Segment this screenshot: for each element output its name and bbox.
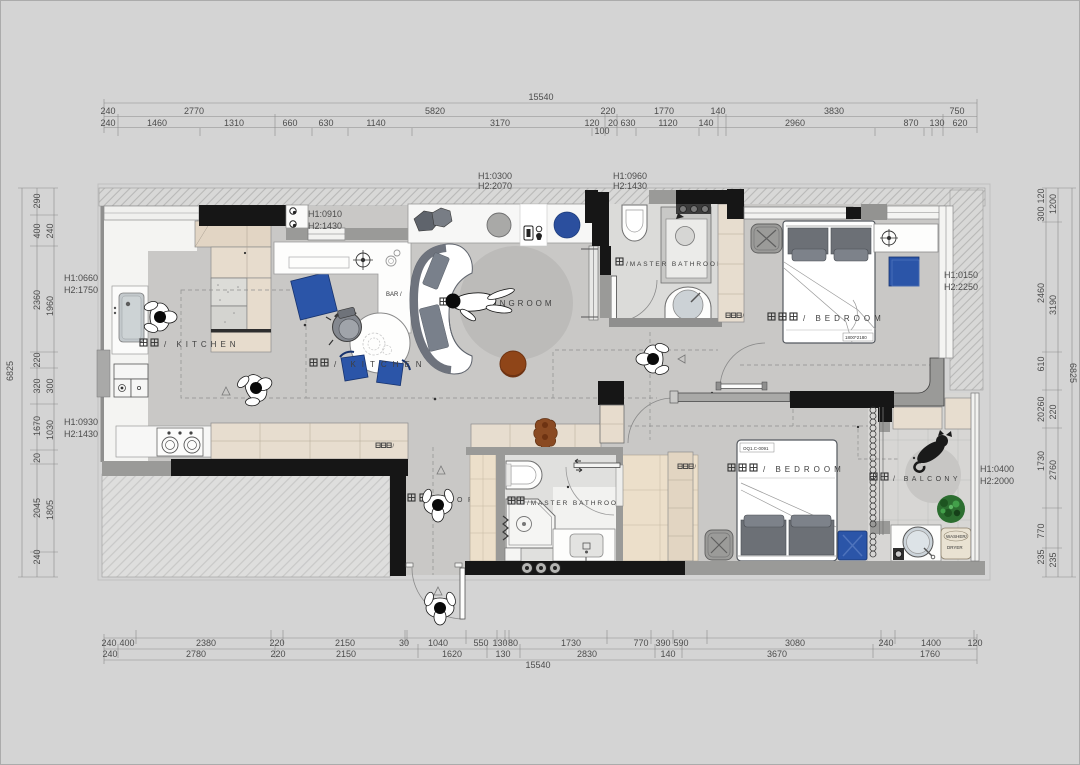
svg-text:3830: 3830 [824,106,844,116]
svg-text:770: 770 [1036,523,1046,538]
svg-text:610: 610 [1036,356,1046,371]
svg-text:3190: 3190 [1048,295,1058,315]
svg-text:1400: 1400 [921,638,941,648]
svg-text:140: 140 [710,106,725,116]
svg-text:140: 140 [698,118,713,128]
svg-text:220: 220 [270,649,285,659]
svg-text:1460: 1460 [147,118,167,128]
svg-text:H1:0930: H1:0930 [64,417,98,427]
svg-text:300: 300 [1036,206,1046,221]
svg-text:20: 20 [32,453,42,463]
svg-text:20: 20 [608,118,618,128]
svg-text:630: 630 [318,118,333,128]
svg-text:550: 550 [473,638,488,648]
svg-text:H1:0150: H1:0150 [944,270,978,280]
svg-text:H2:1430: H2:1430 [613,181,647,191]
svg-text:240: 240 [102,649,117,659]
svg-text:3080: 3080 [785,638,805,648]
svg-text:320: 320 [32,378,42,393]
svg-text:220: 220 [269,638,284,648]
svg-text:770: 770 [633,638,648,648]
svg-text:30: 30 [399,638,409,648]
svg-text:H2:1430: H2:1430 [308,221,342,231]
svg-text:240: 240 [100,118,115,128]
svg-text:130: 130 [492,638,507,648]
svg-text:2150: 2150 [336,649,356,659]
svg-text:1200: 1200 [1048,194,1058,214]
svg-text:H2:2070: H2:2070 [478,181,512,191]
svg-text:H1:0660: H1:0660 [64,273,98,283]
svg-text:2780: 2780 [186,649,206,659]
svg-text:H2:2000: H2:2000 [980,476,1014,486]
svg-text:290: 290 [32,193,42,208]
svg-text:235: 235 [1036,549,1046,564]
svg-text:140: 140 [660,649,675,659]
svg-text:/MASTER BATHROOM: /MASTER BATHROOM [626,261,724,268]
svg-text:240: 240 [101,638,116,648]
svg-text:/ BEDROOM: / BEDROOM [803,314,885,323]
svg-text:1670: 1670 [32,416,42,436]
svg-text:220: 220 [600,106,615,116]
svg-text:870: 870 [903,118,918,128]
svg-text:2960: 2960 [785,118,805,128]
svg-text:1120: 1120 [658,118,677,128]
svg-text:80: 80 [508,638,518,648]
svg-text:H2:1750: H2:1750 [64,285,98,295]
svg-text:H1:0300: H1:0300 [478,171,512,181]
svg-text:240: 240 [878,638,893,648]
svg-text:400: 400 [32,223,42,238]
svg-text:H1:0960: H1:0960 [613,171,647,181]
svg-text:2045: 2045 [32,498,42,518]
svg-text:/MASTER BATHROOM: /MASTER BATHROOM [527,500,625,507]
svg-text:390: 390 [655,638,670,648]
svg-text:130: 130 [929,118,944,128]
svg-text:2830: 2830 [577,649,597,659]
svg-text:120: 120 [967,638,982,648]
svg-text:1620: 1620 [442,649,462,659]
svg-text:H2:2250: H2:2250 [944,282,978,292]
svg-text:1730: 1730 [561,638,581,648]
svg-text:2770: 2770 [184,106,204,116]
svg-text:1030: 1030 [45,420,55,440]
svg-text:/ BEDROOM: / BEDROOM [763,465,845,474]
svg-text:BAR /: BAR / [386,292,402,298]
svg-text:H1:0910: H1:0910 [308,209,342,219]
svg-text:/ KITCHEN: / KITCHEN [334,360,428,369]
svg-text:DRYER: DRYER [947,545,963,550]
svg-text:/ KITCHEN: / KITCHEN [164,340,240,349]
svg-text:1730: 1730 [1036,451,1046,471]
svg-text:400: 400 [119,638,134,648]
svg-text:6825: 6825 [1068,363,1078,383]
svg-text:H2:1430: H2:1430 [64,429,98,439]
svg-text:1960: 1960 [45,296,55,316]
svg-text:OQ1.C-0091: OQ1.C-0091 [743,446,769,451]
svg-text:2360: 2360 [32,290,42,310]
svg-text:5820: 5820 [425,106,445,116]
svg-text:220: 220 [32,352,42,367]
svg-text:220: 220 [1048,404,1058,419]
svg-text:1805: 1805 [45,500,55,520]
svg-text:/ BALCONY: / BALCONY [893,476,961,483]
svg-text:1310: 1310 [224,118,244,128]
svg-text:750: 750 [949,106,964,116]
svg-text:590: 590 [673,638,688,648]
svg-text:240: 240 [45,223,55,238]
svg-text:2760: 2760 [1048,460,1058,480]
svg-text:620: 620 [952,118,967,128]
svg-text:3670: 3670 [767,649,787,659]
svg-text:260: 260 [1036,396,1046,411]
svg-text:2150: 2150 [335,638,355,648]
svg-text:660: 660 [282,118,297,128]
svg-text:1800*2180: 1800*2180 [845,335,867,340]
svg-text:240: 240 [32,549,42,564]
svg-text:630: 630 [620,118,635,128]
svg-text:1040: 1040 [428,638,448,648]
svg-text:130: 130 [495,649,510,659]
svg-text:15540: 15540 [525,660,550,670]
svg-text:120: 120 [1036,188,1046,203]
svg-text:15540: 15540 [528,92,553,102]
svg-text:2380: 2380 [196,638,216,648]
svg-text:WASHER/: WASHER/ [946,534,968,539]
svg-text:300: 300 [45,378,55,393]
svg-text:1760: 1760 [920,649,940,659]
svg-text:H1:0400: H1:0400 [980,464,1014,474]
svg-text:20: 20 [1036,412,1046,422]
svg-text:1770: 1770 [654,106,674,116]
svg-text:2460: 2460 [1036,283,1046,303]
svg-text:235: 235 [1048,552,1058,567]
svg-text:6825: 6825 [5,361,15,381]
svg-text:3170: 3170 [490,118,510,128]
svg-text:1140: 1140 [366,118,385,128]
svg-text:240: 240 [100,106,115,116]
